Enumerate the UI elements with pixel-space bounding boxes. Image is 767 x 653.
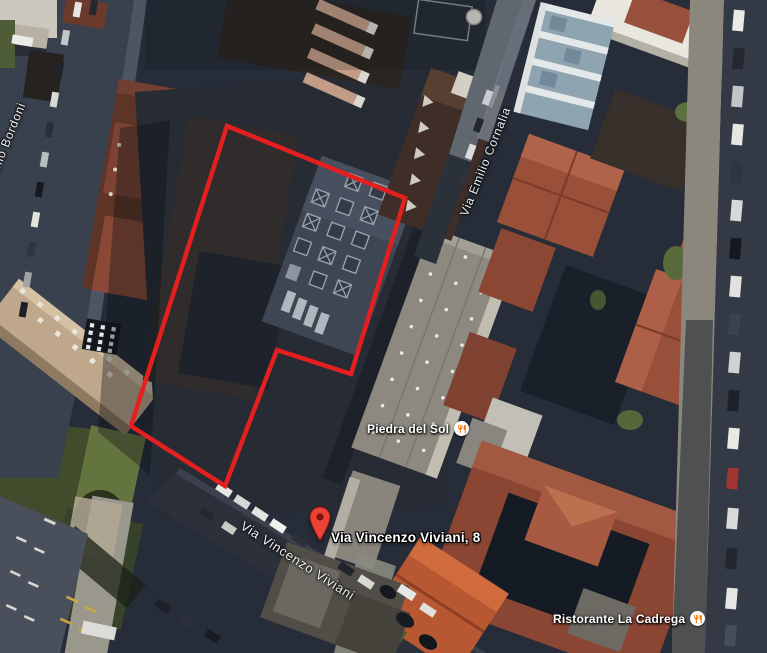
poi-piedra-del-sol[interactable]: Piedra del Sol xyxy=(367,421,469,436)
satellite-map[interactable]: Antonio Bordoni Via Emilio Cornalia Via … xyxy=(0,0,767,653)
marker-address-label: Via Vincenzo Viviani, 8 xyxy=(331,530,480,545)
poi-ristorante-la-cadrega[interactable]: Ristorante La Cadrega xyxy=(553,611,705,626)
satellite-imagery xyxy=(0,0,767,653)
map-pin-icon[interactable] xyxy=(309,506,331,542)
poi-label: Ristorante La Cadrega xyxy=(553,612,685,626)
restaurant-icon xyxy=(690,611,705,626)
poi-label: Piedra del Sol xyxy=(367,422,449,436)
restaurant-icon xyxy=(454,421,469,436)
